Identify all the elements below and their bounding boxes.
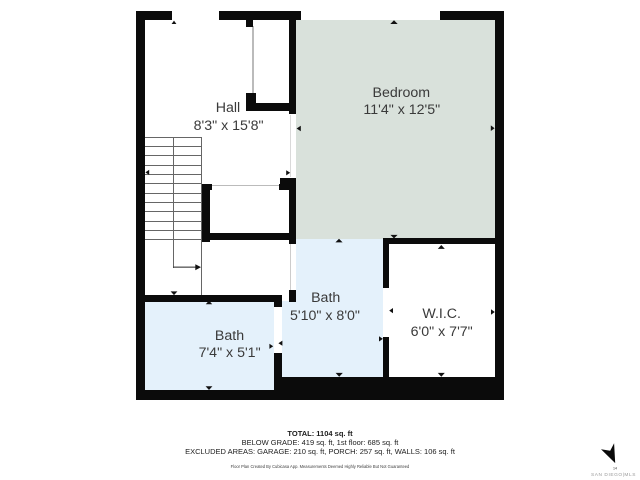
svg-text:SAN DIEGO|MLS: SAN DIEGO|MLS xyxy=(591,472,636,478)
svg-text:14: 14 xyxy=(613,467,617,471)
